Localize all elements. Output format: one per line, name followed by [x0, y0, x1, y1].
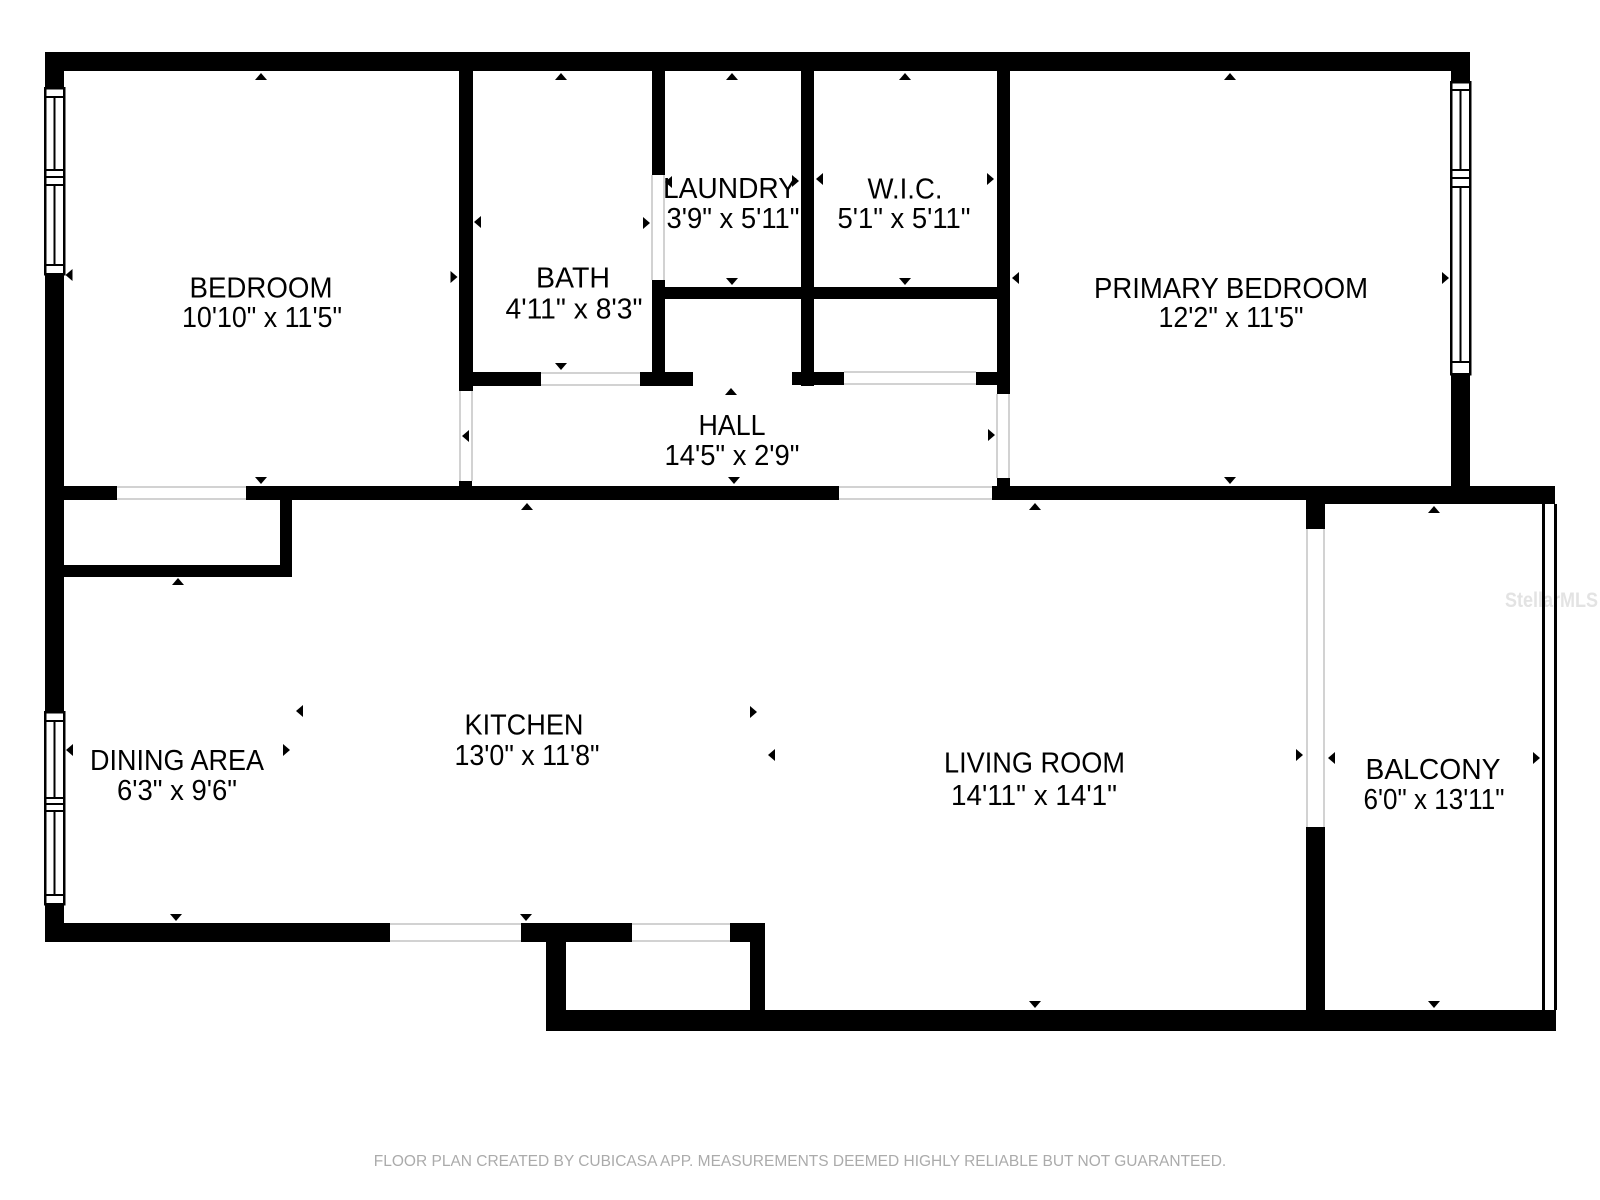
svg-text:DINING AREA: DINING AREA [90, 745, 265, 777]
svg-text:W.I.C.: W.I.C. [868, 174, 943, 206]
svg-text:KITCHEN: KITCHEN [465, 710, 584, 742]
svg-text:14'11" x 14'1": 14'11" x 14'1" [951, 780, 1117, 812]
svg-text:13'0" x 11'8": 13'0" x 11'8" [455, 740, 600, 772]
svg-text:6'0" x 13'11": 6'0" x 13'11" [1364, 784, 1505, 816]
svg-text:StellarMLS: StellarMLS [1505, 589, 1598, 612]
svg-text:LAUNDRY: LAUNDRY [663, 173, 797, 205]
svg-text:BATH: BATH [536, 263, 610, 295]
svg-text:FLOOR PLAN CREATED BY CUBICASA: FLOOR PLAN CREATED BY CUBICASA APP. MEAS… [374, 1153, 1226, 1170]
svg-text:5'1" x 5'11": 5'1" x 5'11" [838, 203, 971, 235]
svg-text:4'11" x 8'3": 4'11" x 8'3" [506, 294, 643, 326]
svg-text:12'2" x 11'5": 12'2" x 11'5" [1159, 302, 1304, 334]
svg-text:BEDROOM: BEDROOM [190, 273, 333, 305]
svg-text:PRIMARY BEDROOM: PRIMARY BEDROOM [1094, 273, 1368, 305]
svg-text:3'9" x 5'11": 3'9" x 5'11" [667, 203, 800, 235]
svg-text:LIVING ROOM: LIVING ROOM [944, 748, 1125, 780]
svg-text:BALCONY: BALCONY [1366, 754, 1501, 786]
svg-text:14'5" x 2'9": 14'5" x 2'9" [665, 440, 800, 472]
svg-text:HALL: HALL [699, 410, 766, 442]
svg-text:10'10" x 11'5": 10'10" x 11'5" [182, 302, 342, 334]
svg-text:6'3" x 9'6": 6'3" x 9'6" [117, 775, 237, 807]
